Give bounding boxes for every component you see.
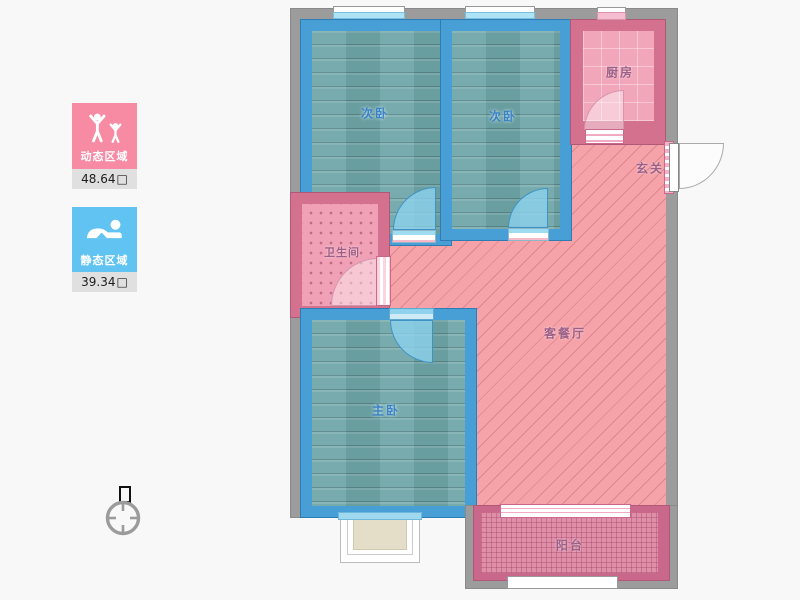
room-label-kitchen: 厨房 bbox=[606, 64, 634, 81]
entrance-door-arc bbox=[679, 143, 724, 189]
floorplan-canvas: 次卧 次卧 厨房 玄关 卫生间 客餐厅 主卧 阳台 bbox=[0, 0, 800, 600]
balcony-sliding-door bbox=[500, 504, 631, 518]
bedroom-right-window-glass bbox=[465, 12, 535, 19]
bay-window-sill bbox=[338, 512, 422, 520]
room-label-balcony: 阳台 bbox=[556, 537, 584, 554]
room-label-bathroom: 卫生间 bbox=[324, 244, 360, 260]
room-label-living-dining: 客餐厅 bbox=[544, 325, 586, 342]
bedroom-right-door-sill bbox=[508, 228, 549, 241]
master-door-sill bbox=[389, 308, 434, 320]
bedroom-left-window-glass bbox=[333, 12, 405, 19]
room-label-bedroom-top-right: 次卧 bbox=[489, 108, 517, 125]
room-label-bedroom-top-left: 次卧 bbox=[361, 105, 389, 122]
entrance-door-leaf bbox=[669, 143, 679, 192]
room-label-entrance: 玄关 bbox=[636, 160, 664, 177]
floorplan-viewer: 动态区域 48.64□ 静态区域 39.34□ bbox=[0, 0, 800, 600]
bathroom-door-leaf bbox=[376, 256, 391, 306]
kitchen-window-glass bbox=[597, 12, 626, 20]
room-label-master-bedroom: 主卧 bbox=[372, 402, 400, 419]
bay-window-glass bbox=[353, 519, 407, 550]
bedroom-left-door-sill bbox=[392, 230, 436, 243]
balcony-window bbox=[507, 576, 618, 589]
kitchen-door-sill bbox=[585, 129, 624, 144]
